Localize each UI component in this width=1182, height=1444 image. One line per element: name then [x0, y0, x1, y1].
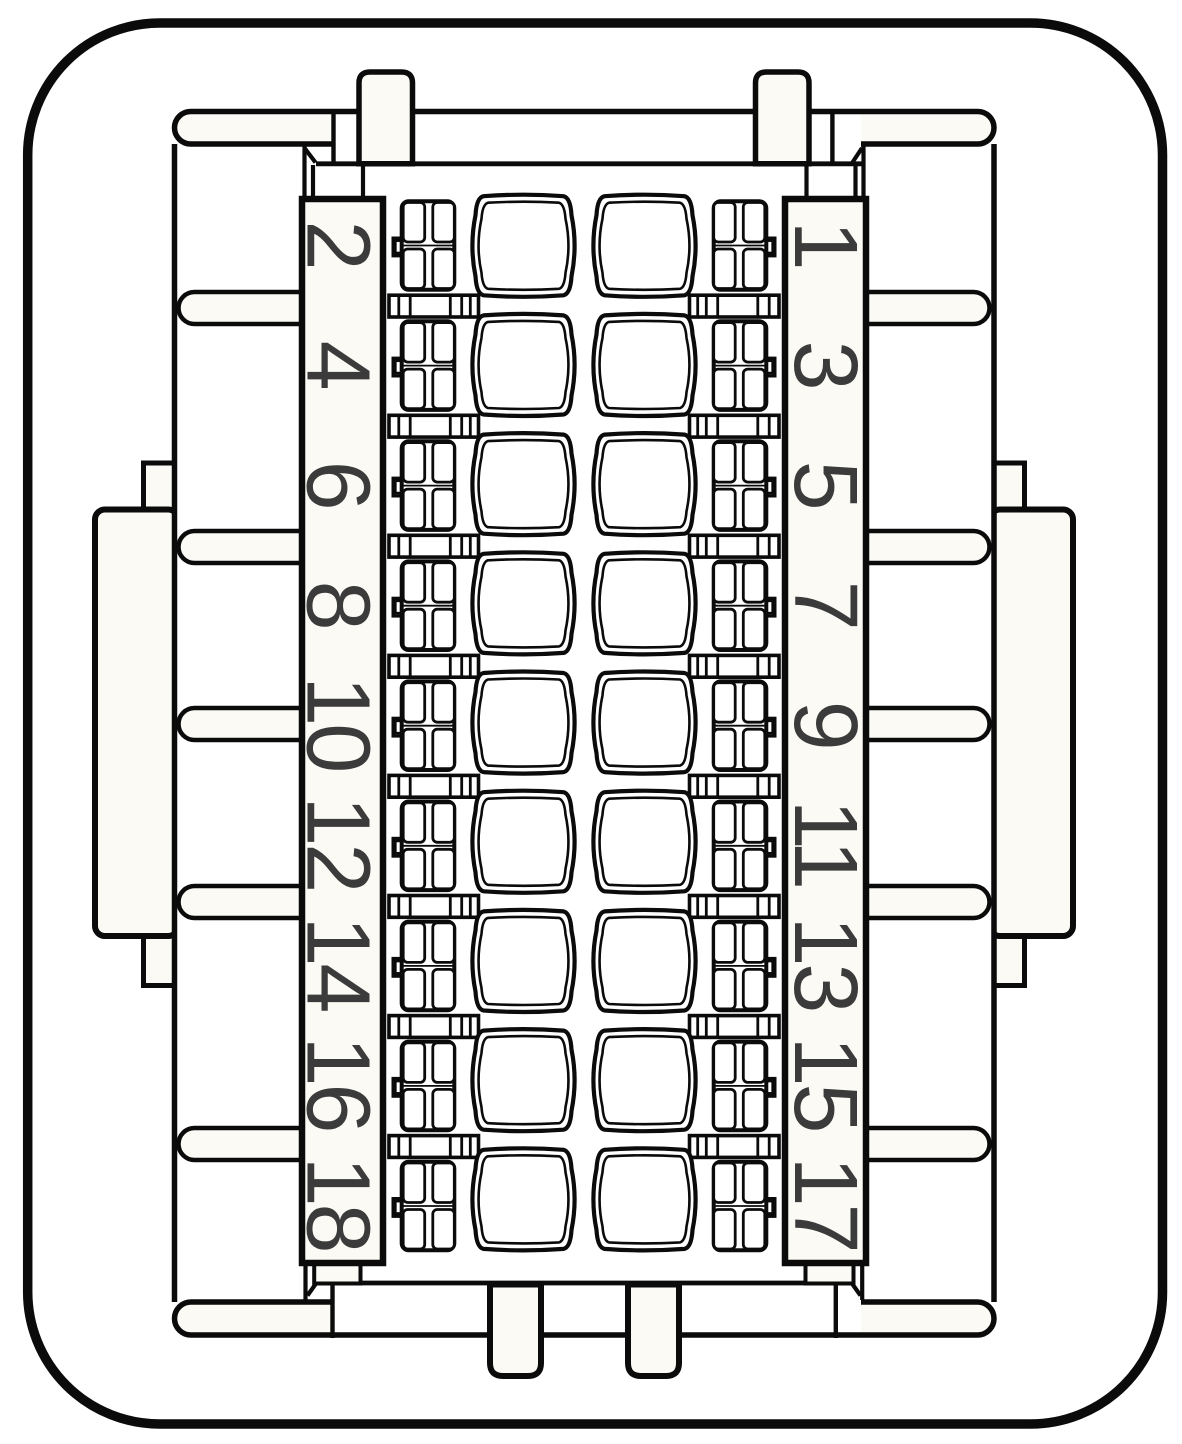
svg-text:8: 8 [288, 581, 388, 631]
svg-text:7: 7 [775, 581, 875, 631]
svg-text:17: 17 [775, 1156, 875, 1250]
svg-text:13: 13 [775, 916, 875, 1010]
svg-text:2: 2 [288, 220, 388, 270]
svg-text:4: 4 [288, 341, 388, 391]
svg-text:11: 11 [775, 800, 875, 887]
svg-text:10: 10 [288, 676, 388, 770]
svg-text:14: 14 [288, 916, 388, 1011]
svg-text:1: 1 [775, 220, 875, 270]
svg-text:18: 18 [288, 1156, 388, 1250]
svg-text:15: 15 [775, 1036, 875, 1130]
svg-text:12: 12 [288, 796, 388, 890]
svg-text:5: 5 [775, 461, 875, 511]
svg-text:9: 9 [775, 701, 875, 751]
svg-text:16: 16 [288, 1036, 388, 1130]
svg-text:3: 3 [775, 341, 875, 391]
svg-text:6: 6 [288, 461, 388, 511]
